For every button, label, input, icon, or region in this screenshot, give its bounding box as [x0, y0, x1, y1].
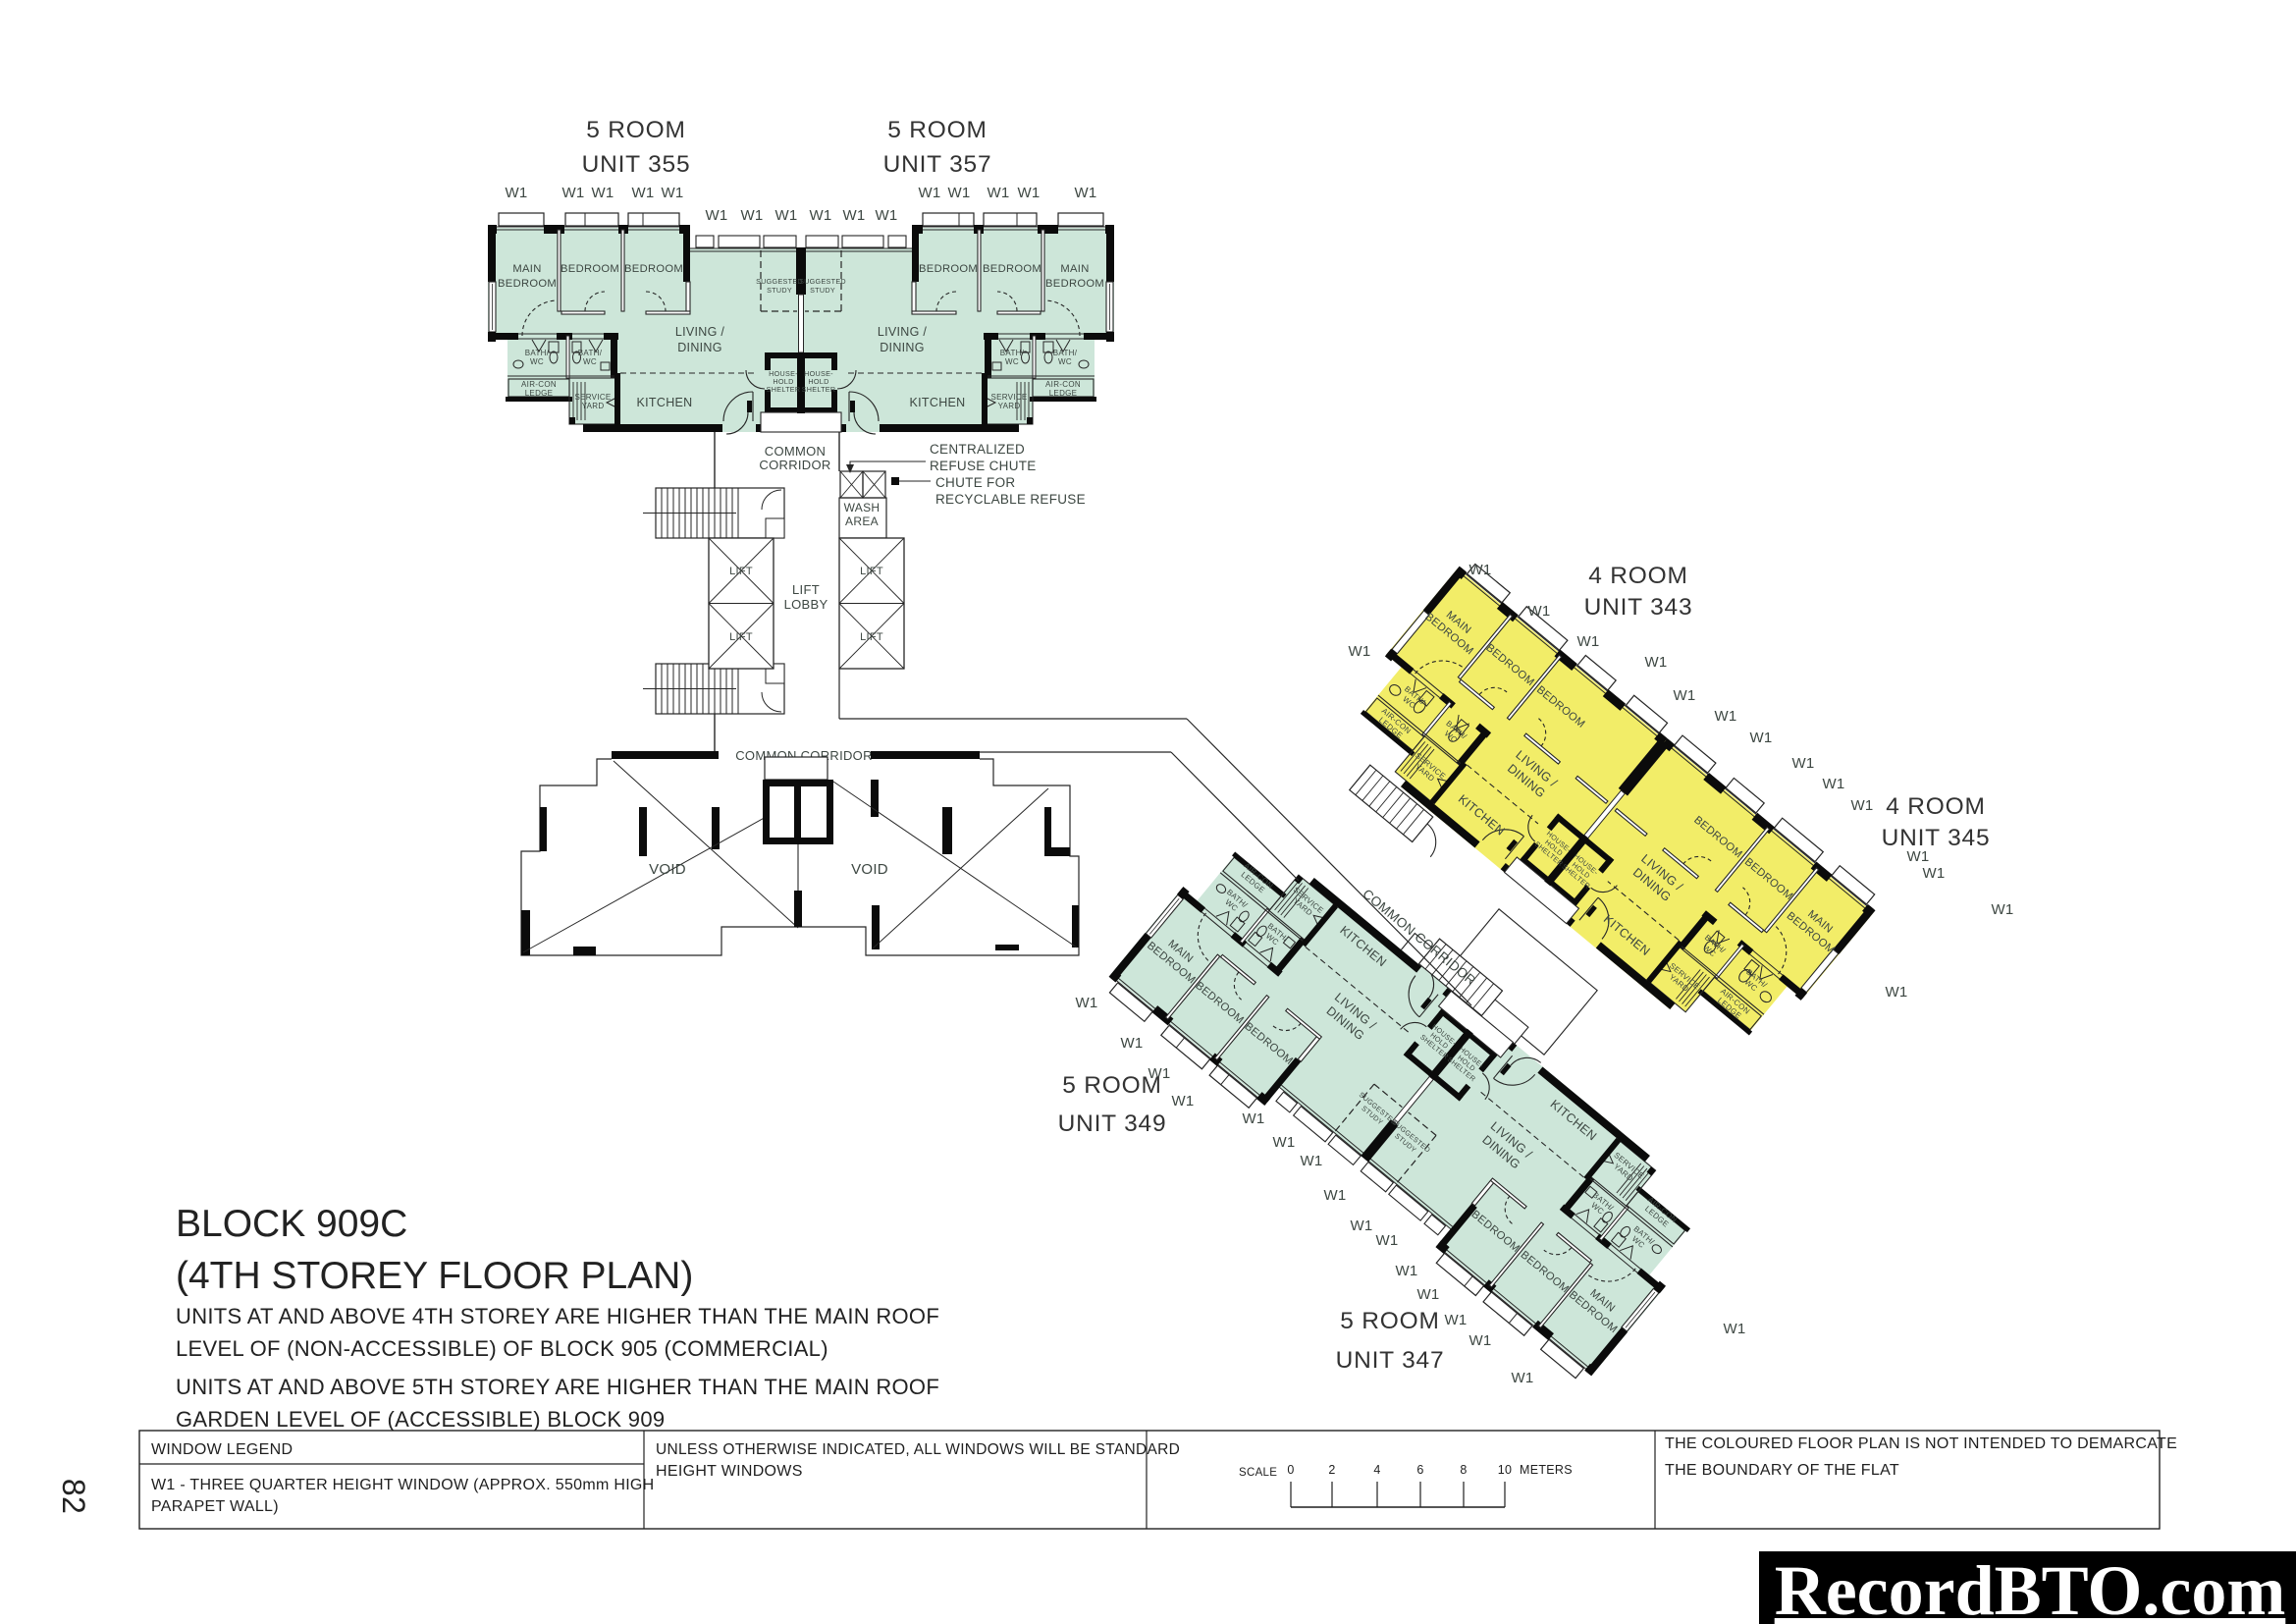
svg-text:W1: W1	[947, 185, 970, 201]
svg-text:SHELTER: SHELTER	[767, 385, 801, 394]
svg-text:STUDY: STUDY	[767, 286, 792, 295]
svg-text:W1: W1	[1714, 708, 1736, 725]
svg-text:W1: W1	[1074, 185, 1096, 201]
svg-text:AIR-CON: AIR-CON	[1045, 380, 1081, 389]
svg-text:W1: W1	[1323, 1187, 1346, 1204]
svg-text:(4TH STOREY FLOOR PLAN): (4TH STOREY FLOOR PLAN)	[176, 1255, 693, 1297]
svg-text:LIFT: LIFT	[729, 631, 753, 643]
svg-text:W1: W1	[918, 185, 940, 201]
svg-text:W1: W1	[1527, 603, 1550, 620]
svg-text:METERS: METERS	[1520, 1463, 1573, 1477]
svg-text:W1: W1	[631, 185, 654, 201]
svg-text:UNITS AT AND ABOVE 4TH STOREY: UNITS AT AND ABOVE 4TH STOREY ARE HIGHER…	[176, 1304, 939, 1328]
svg-text:W1: W1	[505, 185, 527, 201]
svg-text:UNIT 357: UNIT 357	[883, 151, 992, 178]
svg-text:W1: W1	[1350, 1218, 1372, 1234]
svg-text:UNIT 349: UNIT 349	[1058, 1110, 1167, 1137]
svg-text:W1: W1	[1120, 1035, 1143, 1052]
svg-text:5 ROOM: 5 ROOM	[887, 117, 987, 143]
svg-text:W1: W1	[1749, 730, 1772, 746]
svg-text:AREA: AREA	[845, 514, 879, 528]
svg-text:KITCHEN: KITCHEN	[637, 396, 693, 409]
svg-text:W1: W1	[1075, 995, 1097, 1011]
svg-text:W1: W1	[1348, 643, 1370, 660]
svg-text:DINING: DINING	[677, 341, 722, 354]
svg-text:W1: W1	[1576, 633, 1599, 650]
svg-text:BATH/: BATH/	[1053, 349, 1078, 357]
svg-text:SHELTER: SHELTER	[802, 385, 836, 394]
svg-text:W1: W1	[1723, 1321, 1745, 1337]
svg-text:WC: WC	[1058, 357, 1072, 366]
svg-text:DINING: DINING	[880, 341, 925, 354]
svg-text:W1: W1	[740, 207, 763, 224]
svg-text:KITCHEN: KITCHEN	[910, 396, 966, 409]
svg-text:W1: W1	[1468, 1332, 1491, 1349]
svg-text:W1: W1	[1017, 185, 1040, 201]
svg-text:BEDROOM: BEDROOM	[1045, 278, 1104, 290]
svg-text:VOID: VOID	[649, 861, 686, 878]
svg-text:UNIT 355: UNIT 355	[582, 151, 691, 178]
svg-text:W1: W1	[1375, 1232, 1398, 1249]
svg-text:REFUSE CHUTE: REFUSE CHUTE	[930, 459, 1037, 473]
svg-text:82: 82	[56, 1479, 91, 1514]
svg-text:BEDROOM: BEDROOM	[983, 263, 1041, 275]
svg-text:W1: W1	[1644, 654, 1667, 671]
svg-text:6: 6	[1416, 1463, 1423, 1477]
svg-text:WASH: WASH	[844, 501, 881, 514]
svg-text:MAIN: MAIN	[1060, 263, 1089, 275]
svg-text:WC: WC	[583, 357, 597, 366]
svg-text:SUGGESTED: SUGGESTED	[799, 277, 846, 286]
svg-text:LEDGE: LEDGE	[1049, 389, 1078, 398]
svg-text:W1: W1	[1822, 776, 1844, 792]
svg-text:RECYCLABLE REFUSE: RECYCLABLE REFUSE	[935, 492, 1086, 507]
svg-text:LIVING /: LIVING /	[878, 325, 928, 339]
svg-text:5 ROOM: 5 ROOM	[1062, 1072, 1161, 1099]
svg-text:5 ROOM: 5 ROOM	[586, 117, 685, 143]
svg-text:8: 8	[1460, 1463, 1467, 1477]
svg-text:BEDROOM: BEDROOM	[919, 263, 978, 275]
svg-text:LEVEL OF (NON-ACCESSIBLE) OF B: LEVEL OF (NON-ACCESSIBLE) OF BLOCK 905 (…	[176, 1336, 828, 1361]
svg-text:W1: W1	[1991, 901, 2013, 918]
svg-text:W1: W1	[774, 207, 797, 224]
svg-text:W1: W1	[1850, 797, 1873, 814]
svg-text:W1: W1	[1468, 562, 1491, 578]
svg-text:W1: W1	[561, 185, 584, 201]
svg-text:W1: W1	[591, 185, 614, 201]
svg-text:4 ROOM: 4 ROOM	[1588, 563, 1687, 589]
svg-text:W1: W1	[809, 207, 831, 224]
svg-text:HEIGHT WINDOWS: HEIGHT WINDOWS	[656, 1463, 803, 1480]
svg-text:THE BOUNDARY OF THE FLAT: THE BOUNDARY OF THE FLAT	[1665, 1462, 1899, 1479]
svg-text:SERVICE: SERVICE	[990, 393, 1027, 402]
svg-text:YARD: YARD	[582, 402, 605, 410]
svg-text:LIFT: LIFT	[860, 631, 883, 643]
svg-text:PARAPET WALL): PARAPET WALL)	[151, 1498, 279, 1515]
svg-text:WC: WC	[1005, 357, 1019, 366]
svg-text:UNIT 343: UNIT 343	[1584, 594, 1693, 621]
svg-text:SCALE: SCALE	[1239, 1467, 1277, 1479]
svg-text:THE COLOURED FLOOR PLAN IS NOT: THE COLOURED FLOOR PLAN IS NOT INTENDED …	[1665, 1435, 2177, 1452]
svg-text:W1: W1	[1171, 1093, 1194, 1110]
svg-text:MAIN: MAIN	[512, 263, 541, 275]
svg-text:W1: W1	[1673, 687, 1695, 704]
svg-text:LIFT: LIFT	[860, 566, 883, 577]
svg-text:4 ROOM: 4 ROOM	[1886, 793, 1985, 820]
svg-text:W1: W1	[661, 185, 683, 201]
svg-text:RecordBTO.com: RecordBTO.com	[1775, 1551, 2286, 1624]
svg-text:BLOCK 909C: BLOCK 909C	[176, 1203, 407, 1245]
svg-text:UNLESS OTHERWISE INDICATED, AL: UNLESS OTHERWISE INDICATED, ALL WINDOWS …	[656, 1441, 1180, 1458]
svg-text:YARD: YARD	[998, 402, 1021, 410]
svg-text:BEDROOM: BEDROOM	[561, 263, 619, 275]
svg-text:LIFT: LIFT	[792, 582, 820, 597]
svg-text:LIVING /: LIVING /	[675, 325, 725, 339]
svg-text:W1: W1	[1416, 1286, 1439, 1303]
svg-text:W1: W1	[705, 207, 727, 224]
svg-text:W1: W1	[1395, 1263, 1417, 1279]
svg-text:W1: W1	[1885, 984, 1907, 1001]
svg-text:W1 - THREE QUARTER HEIGHT WIND: W1 - THREE QUARTER HEIGHT WINDOW (APPROX…	[151, 1477, 655, 1493]
svg-text:CHUTE FOR: CHUTE FOR	[935, 475, 1015, 490]
svg-text:W1: W1	[1444, 1312, 1467, 1328]
svg-text:WC: WC	[530, 357, 544, 366]
svg-text:WINDOW LEGEND: WINDOW LEGEND	[151, 1441, 293, 1458]
svg-text:W1: W1	[1300, 1153, 1322, 1169]
svg-text:AIR-CON: AIR-CON	[521, 380, 557, 389]
svg-text:BEDROOM: BEDROOM	[624, 263, 683, 275]
svg-text:0: 0	[1287, 1463, 1294, 1477]
svg-text:4: 4	[1373, 1463, 1380, 1477]
svg-text:W1: W1	[987, 185, 1009, 201]
svg-text:GARDEN LEVEL OF (ACCESSIBLE) B: GARDEN LEVEL OF (ACCESSIBLE) BLOCK 909	[176, 1407, 665, 1432]
svg-text:LOBBY: LOBBY	[784, 597, 828, 612]
svg-text:UNIT 345: UNIT 345	[1882, 825, 1991, 851]
svg-text:BATH/: BATH/	[1000, 349, 1025, 357]
svg-text:BEDROOM: BEDROOM	[498, 278, 557, 290]
svg-text:CENTRALIZED: CENTRALIZED	[930, 442, 1025, 457]
svg-text:SUGGESTED: SUGGESTED	[756, 277, 803, 286]
svg-text:5 ROOM: 5 ROOM	[1340, 1308, 1439, 1334]
svg-text:STUDY: STUDY	[810, 286, 835, 295]
svg-text:SERVICE: SERVICE	[574, 393, 611, 402]
svg-text:LIFT: LIFT	[729, 566, 753, 577]
svg-text:COMMON: COMMON	[765, 444, 826, 459]
svg-text:W1: W1	[875, 207, 897, 224]
svg-text:W1: W1	[1511, 1370, 1533, 1386]
svg-text:LEDGE: LEDGE	[525, 389, 554, 398]
svg-text:W1: W1	[1922, 865, 1945, 882]
svg-text:BATH/: BATH/	[525, 349, 550, 357]
svg-text:CORRIDOR: CORRIDOR	[759, 458, 830, 472]
svg-text:VOID: VOID	[851, 861, 888, 878]
svg-text:W1: W1	[1242, 1110, 1264, 1127]
svg-text:W1: W1	[1272, 1134, 1295, 1151]
svg-text:UNITS AT AND ABOVE 5TH STOREY: UNITS AT AND ABOVE 5TH STOREY ARE HIGHER…	[176, 1375, 939, 1399]
svg-text:2: 2	[1328, 1463, 1335, 1477]
svg-text:W1: W1	[842, 207, 865, 224]
svg-text:BATH/: BATH/	[578, 349, 603, 357]
svg-text:W1: W1	[1791, 755, 1814, 772]
svg-text:UNIT 347: UNIT 347	[1336, 1347, 1445, 1374]
svg-text:10: 10	[1498, 1463, 1513, 1477]
